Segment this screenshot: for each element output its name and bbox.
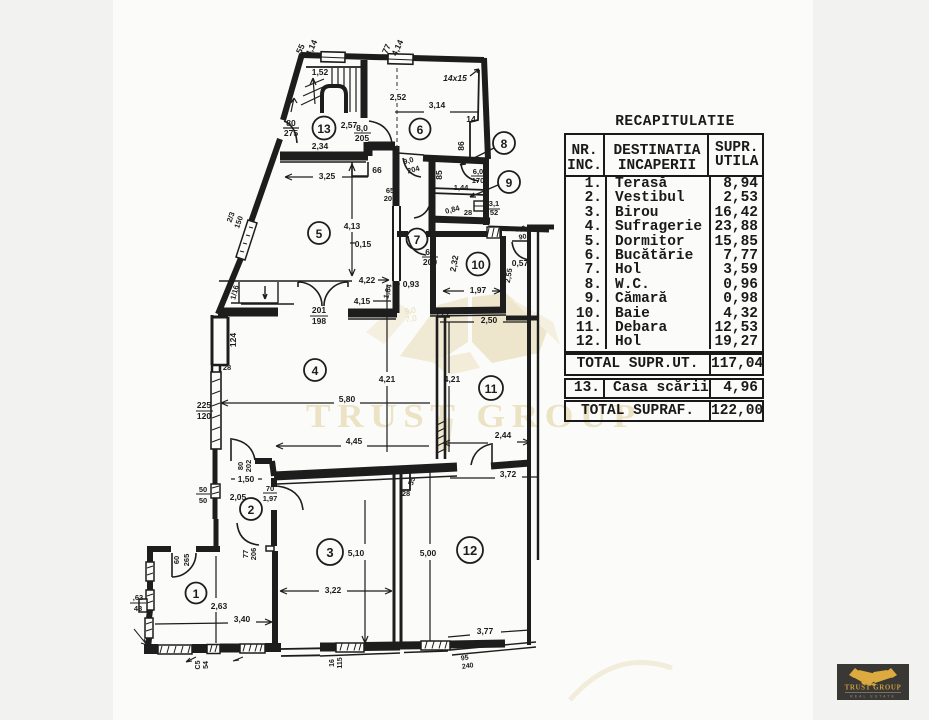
svg-text:5,00: 5,00	[420, 548, 437, 558]
svg-text:10: 10	[471, 258, 485, 272]
svg-text:9: 9	[506, 176, 513, 190]
svg-text:3,14: 3,14	[429, 100, 446, 110]
svg-text:0,57: 0,57	[512, 258, 529, 268]
svg-text:11: 11	[485, 382, 498, 396]
svg-text:60: 60	[425, 247, 435, 257]
svg-text:7: 7	[414, 233, 421, 247]
svg-text:13: 13	[317, 122, 331, 136]
svg-text:8,0: 8,0	[356, 123, 368, 133]
svg-text:7,0: 7,0	[405, 313, 418, 324]
svg-text:90: 90	[518, 233, 527, 241]
svg-text:4,22: 4,22	[359, 275, 376, 285]
svg-text:2,44: 2,44	[495, 430, 512, 440]
svg-text:3,77: 3,77	[477, 626, 494, 636]
svg-text:6: 6	[417, 123, 424, 137]
svg-text:200: 200	[384, 194, 397, 203]
svg-text:1: 1	[193, 587, 200, 601]
svg-text:66: 66	[372, 165, 382, 175]
svg-text:28: 28	[402, 489, 410, 498]
svg-text:3,25: 3,25	[319, 171, 336, 181]
svg-text:4,13: 4,13	[344, 221, 361, 231]
svg-text:12: 12	[463, 543, 477, 558]
svg-text:5,10: 5,10	[348, 548, 365, 558]
svg-text:120: 120	[197, 411, 211, 421]
svg-text:1,97: 1,97	[263, 494, 278, 503]
svg-text:2,57: 2,57	[341, 120, 358, 130]
svg-text:14: 14	[466, 114, 476, 124]
svg-text:5,80: 5,80	[339, 394, 356, 404]
svg-text:6,0: 6,0	[473, 167, 483, 176]
svg-text:225: 225	[197, 400, 211, 410]
svg-text:54: 54	[203, 661, 210, 669]
svg-text:,63: ,63	[133, 593, 143, 602]
svg-text:5: 5	[316, 227, 323, 241]
svg-text:28: 28	[464, 208, 472, 217]
svg-text:2: 2	[248, 503, 255, 517]
svg-text:3,22: 3,22	[325, 585, 342, 595]
svg-text:170: 170	[472, 176, 485, 185]
svg-text:202: 202	[244, 460, 253, 473]
svg-text:198: 198	[312, 316, 326, 326]
svg-text:3,1: 3,1	[489, 199, 499, 208]
svg-text:C5: C5	[195, 660, 202, 669]
svg-text:16: 16	[329, 659, 336, 667]
svg-text:3,72: 3,72	[500, 469, 517, 479]
svg-text:4,45: 4,45	[346, 436, 363, 446]
svg-text:206: 206	[249, 548, 258, 561]
svg-text:REAL ESTATE: REAL ESTATE	[850, 695, 896, 699]
svg-text:4,15: 4,15	[354, 296, 371, 306]
svg-text:14x15: 14x15	[443, 73, 467, 83]
svg-text:2,05: 2,05	[230, 492, 247, 502]
svg-text:4,21: 4,21	[444, 374, 461, 384]
svg-text:1,97: 1,97	[470, 285, 487, 295]
svg-text:124: 124	[228, 333, 238, 347]
svg-text:205: 205	[355, 133, 369, 143]
svg-text:3: 3	[326, 545, 333, 560]
svg-text:2,63: 2,63	[211, 601, 228, 611]
svg-text:48: 48	[134, 604, 142, 613]
svg-text:85: 85	[434, 170, 444, 180]
svg-text:3,40: 3,40	[234, 614, 251, 624]
svg-text:2,50: 2,50	[481, 315, 498, 325]
svg-text:4,21: 4,21	[379, 374, 396, 384]
svg-text:265: 265	[182, 554, 191, 567]
svg-text:4: 4	[312, 364, 319, 378]
svg-text:8: 8	[501, 137, 508, 151]
svg-text:50: 50	[199, 485, 207, 494]
svg-text:1,50: 1,50	[238, 474, 255, 484]
svg-text:2,52: 2,52	[390, 92, 407, 102]
svg-text:50: 50	[199, 496, 207, 505]
svg-text:0,15: 0,15	[355, 239, 372, 249]
svg-text:60: 60	[172, 556, 181, 564]
svg-text:1,52: 1,52	[312, 67, 329, 77]
svg-text:200: 200	[423, 257, 437, 267]
svg-text:0,93: 0,93	[403, 279, 420, 289]
svg-text:80: 80	[286, 118, 296, 128]
svg-text:28: 28	[223, 363, 231, 372]
svg-text:115: 115	[337, 657, 344, 668]
svg-text:275: 275	[284, 128, 298, 138]
svg-text:2,34: 2,34	[312, 141, 329, 151]
svg-text:201: 201	[312, 305, 326, 315]
svg-text:1,44: 1,44	[454, 183, 469, 192]
svg-text:86: 86	[456, 141, 466, 151]
svg-text:TRUST GROUP: TRUST GROUP	[845, 684, 902, 692]
svg-text:95: 95	[460, 654, 469, 662]
svg-text:70: 70	[266, 484, 274, 493]
